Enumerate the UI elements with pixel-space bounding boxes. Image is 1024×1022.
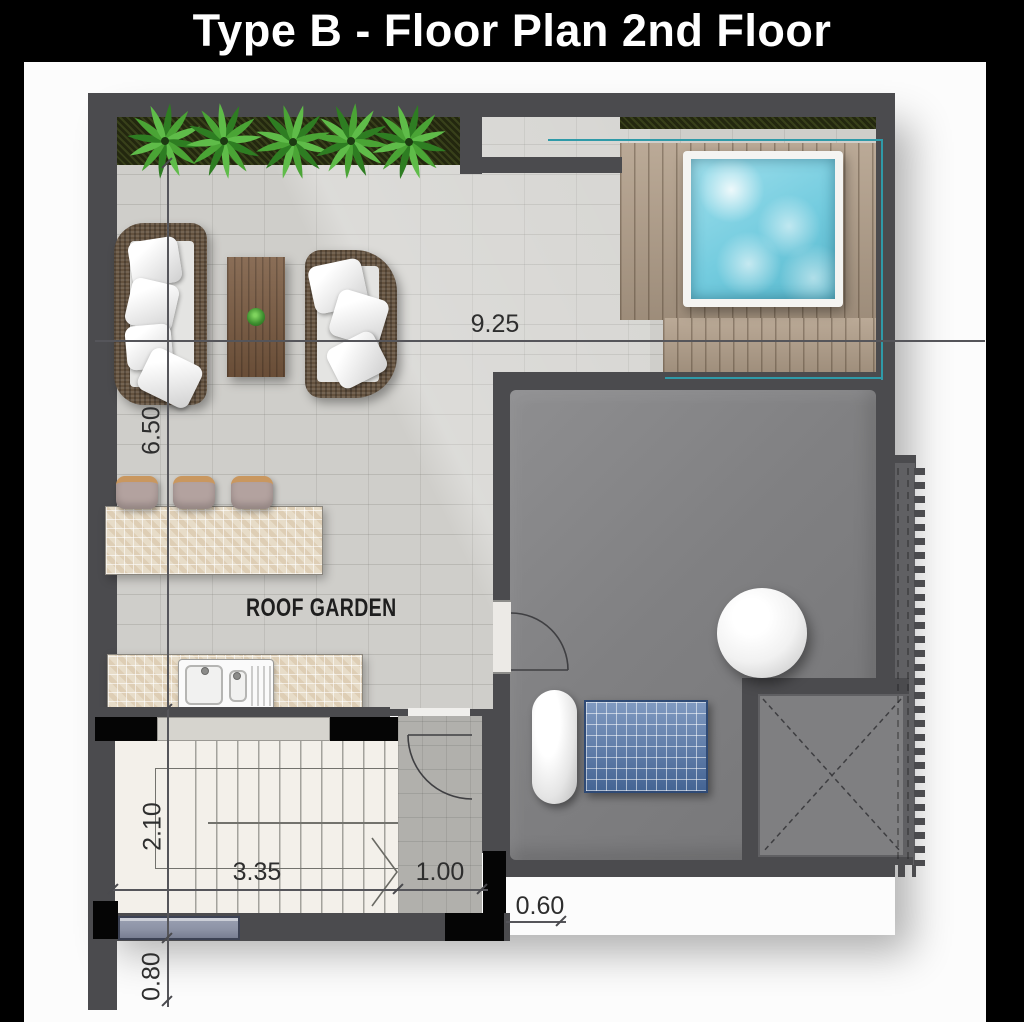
room-label: ROOF GARDEN — [246, 594, 397, 623]
dimension-label-stair-depth: 2.10 — [139, 795, 168, 859]
pergola-teeth-bottom — [758, 865, 916, 877]
table-plant-icon — [247, 308, 265, 326]
stair-void-outline — [155, 768, 399, 869]
void-wall-bottom — [756, 857, 913, 865]
wall-column — [95, 717, 157, 741]
dimension-label-right-offset: 0.60 — [500, 892, 580, 921]
bar-stool — [231, 476, 273, 509]
dimension-label-stair-width: 3.35 — [217, 858, 297, 887]
wall-top — [88, 93, 895, 117]
water-heater-tank — [532, 690, 577, 804]
low-wall — [157, 717, 330, 741]
floor-plan-page: Type B - Floor Plan 2nd Floor — [0, 0, 1024, 1022]
glass-railing-bottom — [665, 377, 883, 379]
coffee-table — [227, 257, 285, 377]
outdoor-sofa — [114, 223, 207, 405]
dimension-label-landing-width: 1.00 — [400, 858, 480, 887]
void-wall-top — [742, 678, 909, 694]
planter-bed — [117, 117, 460, 165]
solar-panel — [584, 700, 708, 793]
glass-railing-right — [881, 139, 883, 380]
outdoor-armchair — [305, 250, 397, 398]
wall-column — [330, 717, 404, 741]
faucet-icon — [233, 672, 241, 680]
wall-column — [445, 913, 504, 941]
sink-drainer — [251, 666, 271, 706]
floor-plan-drawing: ROOF GARDEN 9.25 6.50 2.10 0.80 3.35 1.0… — [0, 0, 1024, 1022]
window — [118, 916, 240, 940]
wall-landing-right — [482, 713, 506, 853]
bar-counter — [105, 506, 323, 575]
dimension-line-horizontal — [95, 340, 985, 342]
void-wall-left — [742, 678, 759, 864]
stair-mid-line — [208, 822, 398, 824]
glass-railing-top — [548, 139, 883, 141]
dimension-line-vertical — [167, 165, 169, 1007]
pergola-teeth-right — [914, 468, 925, 866]
jacuzzi — [683, 151, 843, 307]
room-door-opening — [493, 600, 511, 674]
wall-kitchen-bottom — [88, 707, 390, 717]
bar-stool — [116, 476, 158, 509]
faucet-icon — [201, 667, 209, 675]
wall-column — [93, 901, 118, 939]
dimension-label-terrace-width: 9.25 — [455, 310, 535, 339]
skylight-dome — [717, 588, 807, 678]
wall-step-horizontal — [460, 157, 622, 173]
dimension-label-terrace-depth: 6.50 — [138, 399, 167, 463]
void-skylight-area — [758, 694, 905, 857]
dimension-label-bottom-offset: 0.80 — [138, 945, 167, 1009]
pool-deck-lower — [663, 318, 876, 376]
bar-stool — [173, 476, 215, 509]
dimension-line-stairs — [112, 889, 488, 891]
jacuzzi-water — [691, 159, 835, 299]
kitchen-sink — [178, 659, 274, 711]
